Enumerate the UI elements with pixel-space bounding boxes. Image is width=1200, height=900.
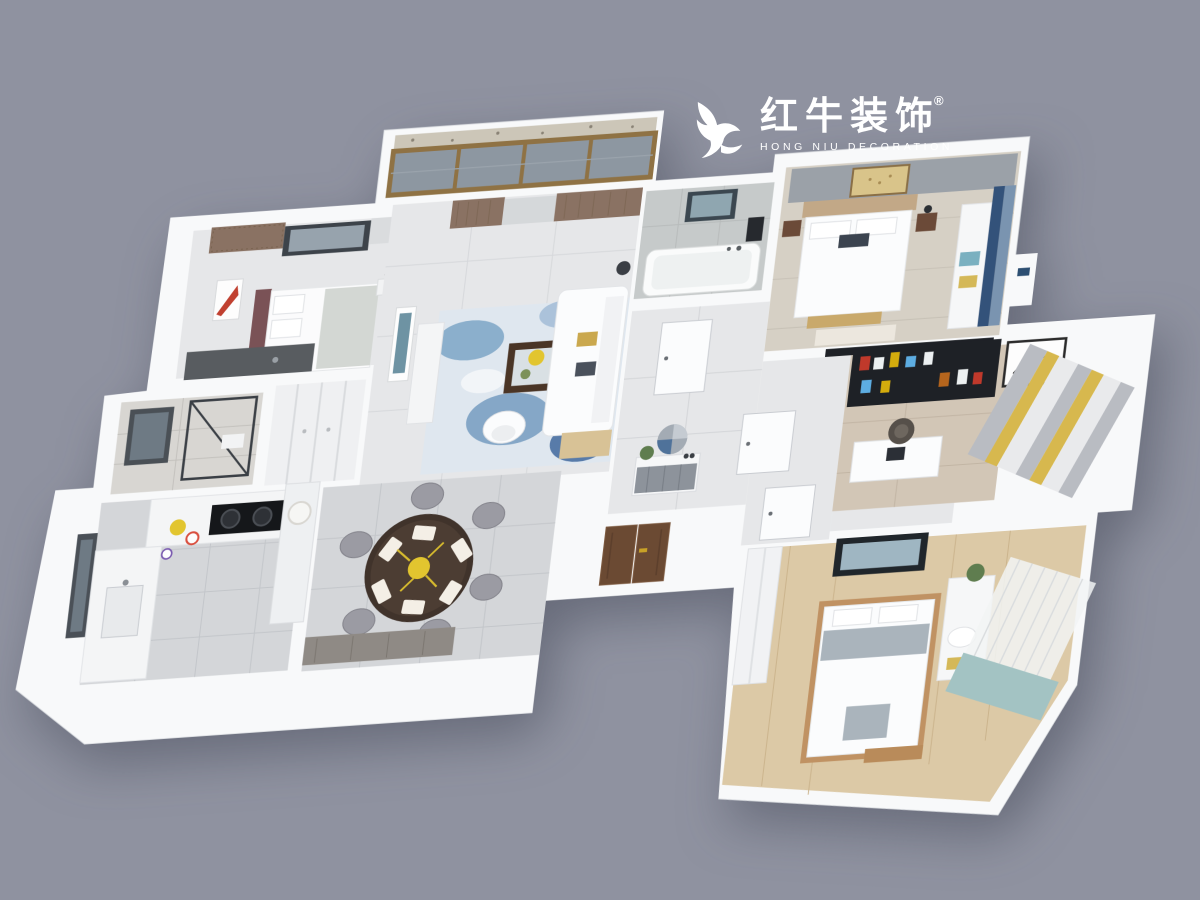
master-bay-items — [1017, 267, 1030, 276]
room-second-bathroom — [110, 393, 263, 495]
logo-title-cn: 红牛装饰 — [760, 96, 940, 138]
entry-door-handle — [639, 548, 647, 553]
hallway-door-3 — [759, 485, 815, 541]
sofa-cushion-dark — [575, 361, 597, 376]
entry-door-right — [632, 523, 670, 583]
registered-mark: ® — [934, 93, 951, 108]
floorplan-render — [0, 0, 1200, 900]
kitchen-cooktop — [209, 500, 287, 535]
room-dining — [301, 471, 561, 672]
master-nightstand-left — [782, 220, 802, 237]
master-art — [850, 165, 909, 197]
south-bedroom-throw — [842, 704, 890, 741]
north-bedroom-blanket — [316, 285, 380, 369]
room-living — [359, 187, 643, 489]
hallway-door-1 — [654, 319, 713, 395]
entry-door-left — [599, 525, 637, 585]
living-sheer — [502, 195, 557, 225]
master-pillow-yellow — [958, 275, 977, 288]
master-pillow-cyan — [959, 251, 981, 266]
master-nightstand-right — [915, 212, 937, 231]
shower-towel — [221, 433, 245, 449]
bull-swoosh-icon — [692, 98, 750, 162]
room-main-bathroom — [634, 182, 775, 299]
sofa-cushion-gold — [576, 331, 598, 346]
master-throw-pillow — [838, 233, 870, 248]
logo-subtitle-en: HONG NIU DECORATION — [760, 141, 957, 153]
hongniu-logo: 红牛装饰® HONG NIU DECORATION — [692, 98, 962, 162]
room-hall-closet — [264, 379, 366, 485]
hallway-door-2 — [737, 411, 796, 475]
study-laptop — [886, 447, 906, 461]
bathroom-shelf — [746, 217, 765, 242]
sofa-bench — [559, 430, 612, 460]
scene — [0, 0, 1200, 900]
kitchen-sink — [101, 585, 143, 638]
